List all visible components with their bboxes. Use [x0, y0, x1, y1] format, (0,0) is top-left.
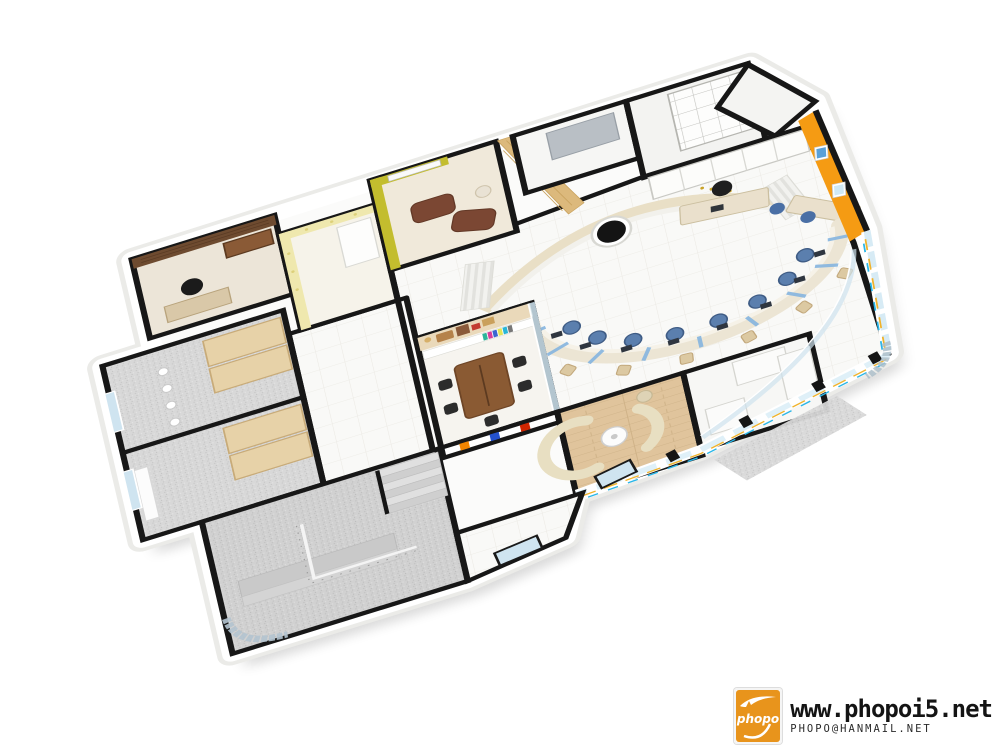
- 3d-floorplan-rendering: [0, 0, 1000, 750]
- watermark-site-url: www.phopoi5.net: [790, 697, 992, 721]
- phopo-logo: phopo: [734, 688, 782, 744]
- watermark: phopo www.phopoi5.net PHOPO@HANMAIL.NET: [734, 688, 992, 744]
- logo-text: phopo: [736, 712, 779, 726]
- watermark-email: PHOPO@HANMAIL.NET: [790, 724, 992, 735]
- louver-panel: [460, 261, 494, 311]
- floorplan-render-canvas: phopo www.phopoi5.net PHOPO@HANMAIL.NET: [0, 0, 1000, 750]
- leather-sofa: [451, 208, 497, 232]
- isometric-plan: [76, 37, 931, 690]
